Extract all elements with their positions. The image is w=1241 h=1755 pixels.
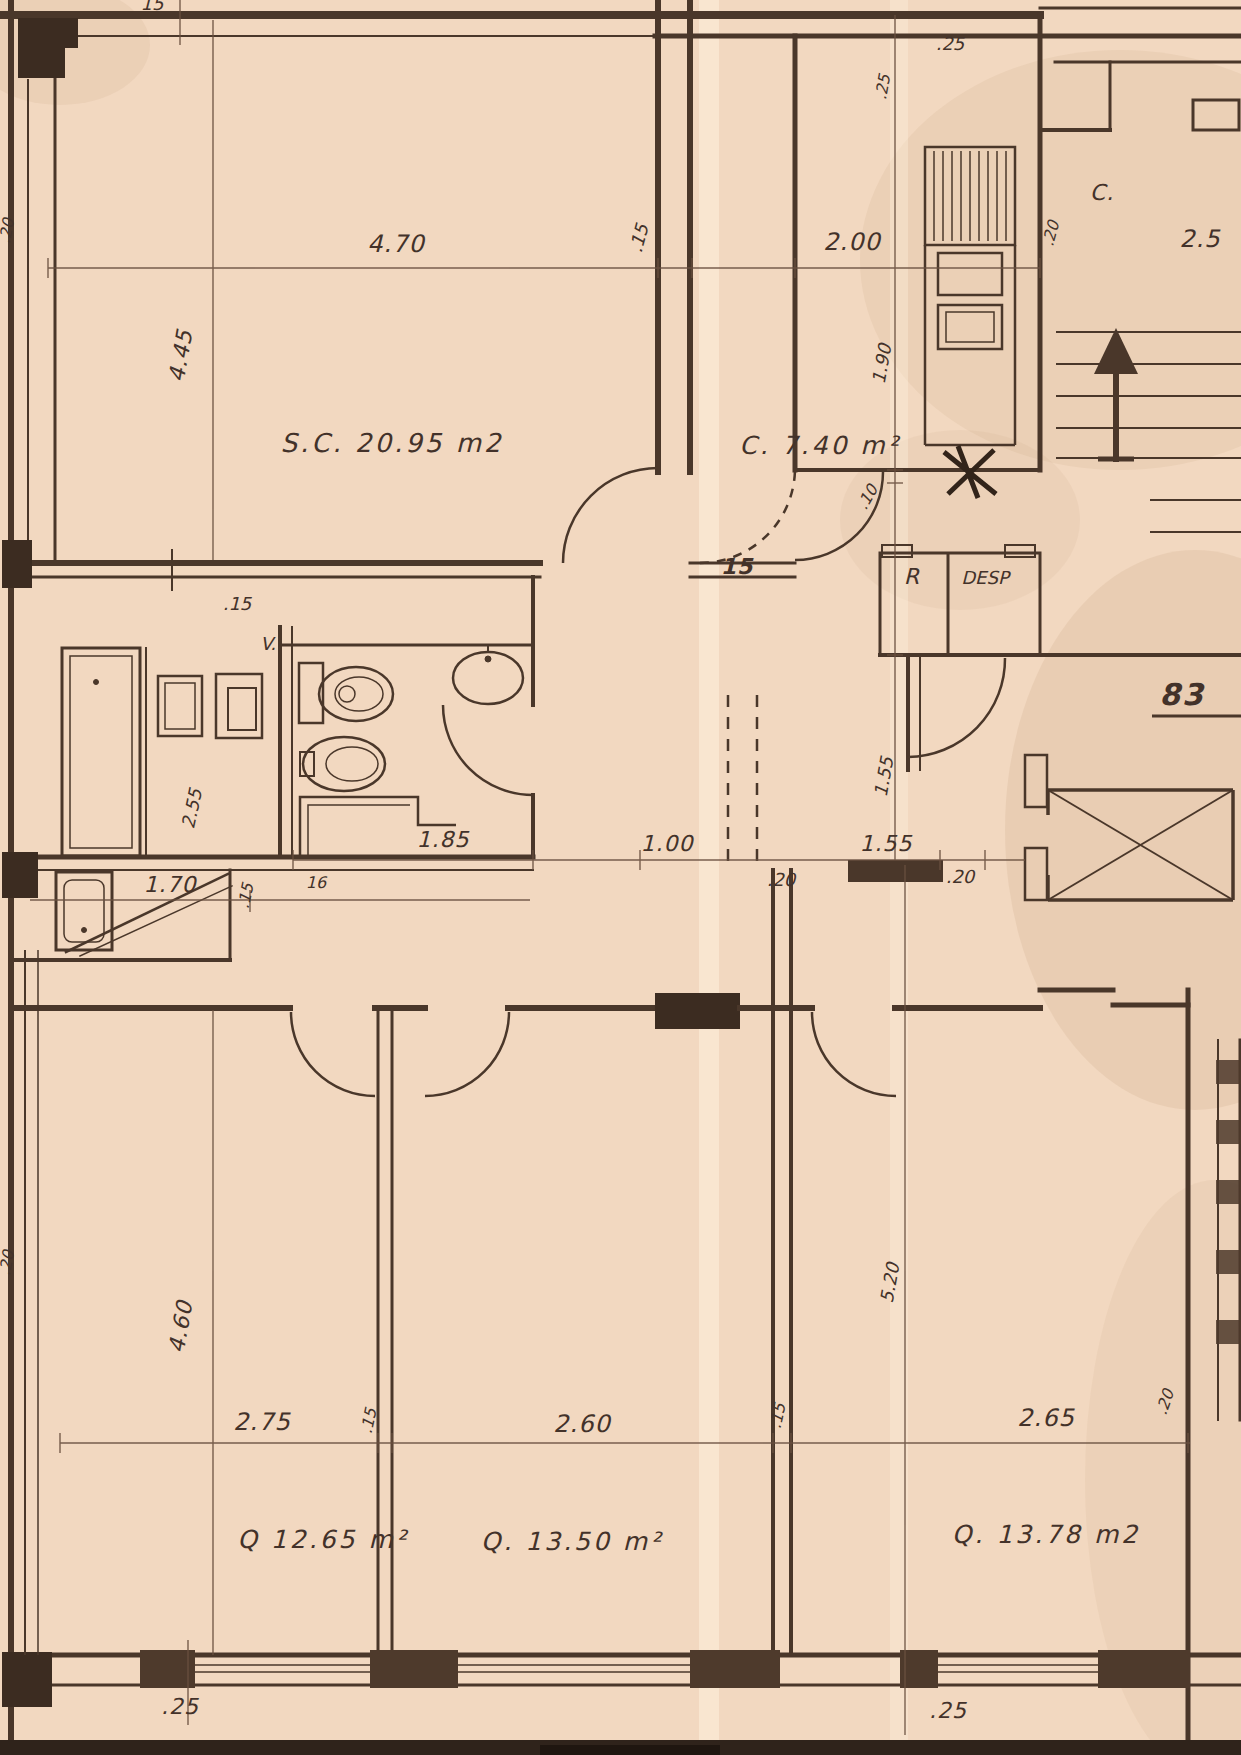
dim-sill-25-left: .25 <box>161 1694 199 1719</box>
toilet-icon <box>299 663 393 723</box>
dim-bedroom3-width: 2.65 <box>1017 1404 1075 1432</box>
dim-bedroom2-width: 2.60 <box>553 1410 611 1438</box>
door-bedroom1 <box>291 1012 375 1096</box>
dim-left-20-lower: .20 <box>0 1247 18 1277</box>
floor-plan-page: 15 4.70 .15 2.00 .25 .25 C. .20 2.5 4.45… <box>0 0 1241 1755</box>
dim-bath-wall-15: .15 <box>223 593 253 614</box>
dim-bath-depth: 2.55 <box>177 785 206 830</box>
dim-bedroom1-depth: 4.60 <box>164 1297 198 1355</box>
label-living-room: S.C. 20.95 m2 <box>280 428 503 458</box>
dim-entry-width: 2.5 <box>1179 225 1221 253</box>
door-living <box>563 468 658 563</box>
door-bedroom3 <box>812 1012 896 1096</box>
label-bedroom1: Q 12.65 m² <box>237 1525 409 1554</box>
dim-sill-25-right: .25 <box>929 1698 967 1723</box>
dim-wall-15: .15 <box>625 220 653 255</box>
dim-top-tick: 15 <box>141 0 165 14</box>
mark-83: 83 <box>1159 677 1205 712</box>
label-bedroom2: Q. 13.50 m² <box>481 1527 663 1556</box>
dim-bath-width: 1.85 <box>417 827 470 852</box>
dim-nook-wall-15: .15 <box>234 881 258 911</box>
label-kitchen: C. 7.40 m² <box>739 431 900 460</box>
dim-hall-width: 1.00 <box>641 831 695 856</box>
cabinet-icon <box>216 674 262 738</box>
dim-bedroom1-width: 2.75 <box>233 1408 291 1436</box>
dim-nook-16: 16 <box>306 873 328 892</box>
washbasin-icon <box>56 872 112 950</box>
dim-kitchen-wall-25: .25 <box>936 33 966 54</box>
dim-hall-wall-15: 15 <box>721 554 754 579</box>
dim-hall-wall-20-left: .20 <box>767 869 797 890</box>
floor-plan-svg: 15 4.70 .15 2.00 .25 .25 C. .20 2.5 4.45… <box>0 0 1241 1755</box>
label-closet: C. <box>1090 180 1114 205</box>
dim-divider-15-b: .15 <box>766 1401 790 1431</box>
dim-left-20-upper: .20 <box>0 215 18 245</box>
dim-hall-wall-20-right: .20 <box>946 866 976 887</box>
dim-kitchen-width: 2.00 <box>823 228 881 256</box>
dim-nook-width: 1.70 <box>144 872 198 897</box>
sink-icon <box>453 645 523 704</box>
dim-living-height: 4.45 <box>164 327 198 384</box>
bidet-icon <box>300 737 385 791</box>
laundry-tub-icon <box>62 648 140 856</box>
bathroom-fixtures <box>56 645 523 950</box>
label-vent: V. <box>260 633 276 654</box>
scan-edge <box>0 1740 1241 1755</box>
label-pantry-desp: DESP <box>961 567 1012 588</box>
door-corridor <box>908 658 1005 757</box>
heater-icon <box>158 676 202 736</box>
dim-living-width: 4.70 <box>367 230 425 258</box>
dim-corridor-width: 1.55 <box>860 831 913 856</box>
label-bedroom3: Q. 13.78 m2 <box>952 1520 1140 1549</box>
label-pantry-r: R <box>904 564 920 589</box>
door-bedroom2 <box>425 1012 509 1096</box>
door-bathroom <box>443 705 533 795</box>
windows <box>25 950 1241 1688</box>
